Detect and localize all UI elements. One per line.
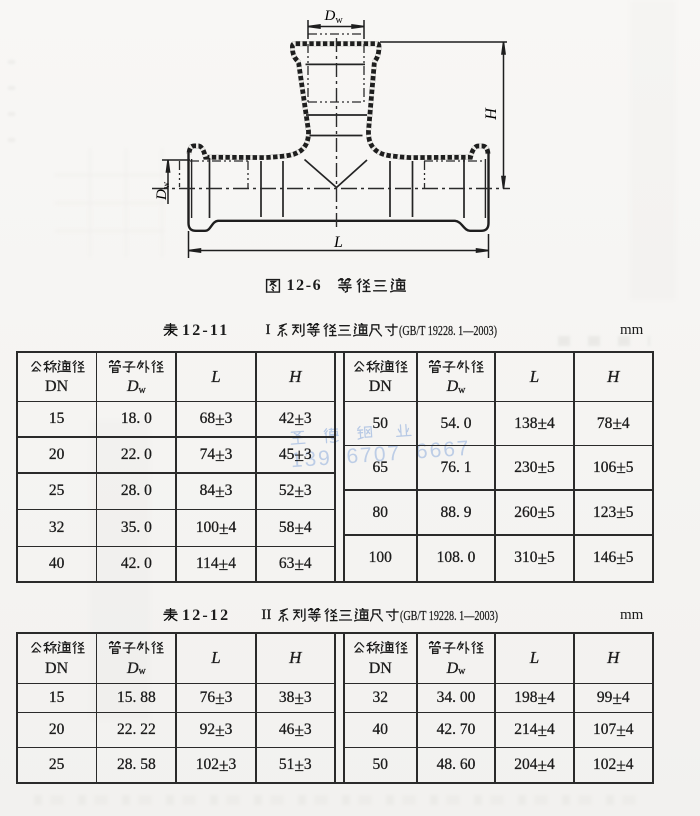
svg-text:D: D — [154, 189, 170, 201]
svg-text:L: L — [333, 234, 343, 251]
svg-text:w: w — [336, 15, 344, 26]
svg-text:w: w — [161, 181, 172, 189]
svg-text:H: H — [483, 107, 500, 121]
svg-text:D: D — [324, 8, 336, 24]
